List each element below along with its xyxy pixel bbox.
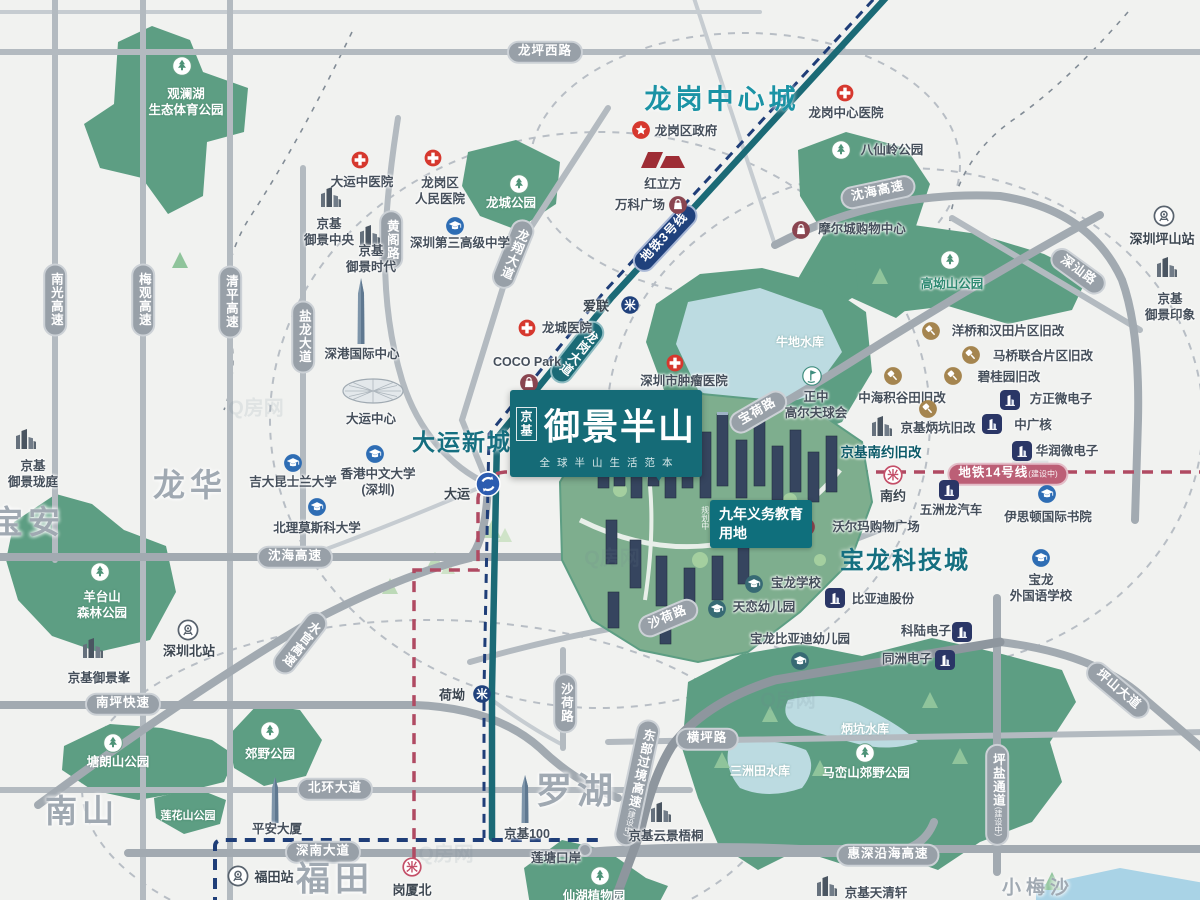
towers-icon (13, 427, 37, 449)
poi-label: 北理莫斯科大学 (273, 520, 361, 536)
road-label-pill: 坪山大道 (1082, 657, 1155, 723)
road-label-pill: 惠深沿海高速 (836, 844, 939, 867)
poi-label: 京基御景珑庭 (8, 458, 58, 491)
poi-label: 大运中心 (346, 411, 396, 427)
district-label: 宝安 (0, 497, 65, 543)
poi-label: 炳坑水库 (841, 722, 889, 738)
tree-icon (260, 721, 280, 741)
rail-station-icon (1154, 206, 1175, 227)
poi-label: 深圳市肿瘤医院 (640, 373, 728, 389)
school-icon (1038, 485, 1057, 504)
road-label-pill: 盐龙大道 (291, 301, 315, 374)
poi-label: 比亚迪股份 (852, 591, 915, 607)
logo-title: 御景半山 (544, 398, 696, 450)
metro-station-icon: 米 (402, 857, 422, 877)
navyb-icon (1012, 441, 1032, 461)
education-land-line1: 九年义务教育 (719, 505, 803, 524)
district-label: 福田 (296, 852, 374, 900)
poi-label: 马峦山郊野公园 (822, 765, 910, 781)
poi-label: 香港中文大学(深圳) (340, 466, 415, 499)
poi-label: 牛地水库 (776, 335, 824, 351)
area-title: 宝龙科技城 (840, 541, 970, 576)
road-label-pill: 沈海高速 (257, 546, 333, 569)
spire-icon (519, 775, 532, 823)
poi-label: 伊思顿国际书院 (1004, 509, 1092, 525)
school2-icon (791, 652, 810, 671)
district-label: 罗湖 (536, 762, 618, 814)
school-icon (1032, 549, 1051, 568)
rail-station-icon (178, 620, 199, 641)
poi-label: 深圳第三高级中学 (410, 235, 510, 251)
gavel-icon (962, 346, 981, 365)
poi-label: 塘朗山公园 (87, 754, 150, 770)
poi-label: 京基云景梧桐 (628, 828, 703, 844)
road-label-pill: 南光高速 (43, 264, 67, 337)
road-label-pill: 沙荷路 (635, 595, 701, 640)
road-label-pill: 横坪路 (676, 728, 739, 751)
school-icon (446, 217, 465, 236)
road-label-pill: 龙坪西路 (507, 41, 583, 64)
poi-label: 方正微电子 (1030, 391, 1093, 407)
hosp-icon (518, 319, 536, 337)
gavel-icon (944, 367, 963, 386)
gavel-icon (922, 322, 941, 341)
school-icon (308, 498, 327, 517)
poi-label: 观澜湖生态体育公园 (148, 86, 223, 119)
rail-station-icon (228, 866, 249, 887)
poi-label: 华润微电子 (1036, 443, 1099, 459)
area-title: 龙岗中心城 (645, 78, 800, 117)
poi-label: 平安大厦 (252, 821, 302, 837)
map-canvas[interactable]: 京基 御景半山 全球半山生活范本 规划中 九年义务教育 用地 Q房网Q房网Q房网… (0, 0, 1200, 900)
tree-icon (831, 140, 851, 160)
area-title: 大运新城 (412, 423, 512, 457)
station-label: 大运 (444, 484, 470, 503)
hosp-icon (424, 149, 442, 167)
station-label: 深圳北站 (163, 641, 215, 660)
towers-icon (648, 800, 672, 822)
poi-label: 碧桂园旧改 (978, 369, 1041, 385)
hosp-icon (351, 151, 369, 169)
poi-label: 羊台山森林公园 (77, 589, 127, 622)
gov-icon (632, 121, 651, 140)
gavel-icon (919, 400, 938, 419)
road-label-pill: 北环大道 (297, 778, 373, 801)
watermark: Q房网 (418, 838, 474, 867)
station-label: 南约 (880, 486, 906, 505)
logo-brand: 京基 (516, 407, 537, 441)
poi-label: 郊野公园 (245, 746, 295, 762)
logo-subtitle: 全球半山生活范本 (520, 455, 692, 470)
golf-icon (802, 366, 822, 386)
poi-label: 京基100 (504, 826, 550, 842)
station-label: 荷坳 (439, 685, 465, 704)
poi-label: 莲塘口岸 (531, 850, 581, 866)
navyb-icon (825, 588, 845, 608)
poi-label: 京基炳坑旧改 (900, 420, 975, 436)
education-land-tag: 规划中 (699, 506, 710, 530)
poi-label: 沃尔玛购物广场 (832, 519, 920, 535)
poi-label: 京基御景印象 (1145, 291, 1195, 324)
stadium-icon (341, 377, 405, 405)
station-label: 福田站 (254, 867, 293, 886)
poi-label: 龙岗区政府 (655, 123, 718, 139)
poi-label: 龙岗中心医院 (808, 105, 883, 121)
towers-icon (1154, 255, 1178, 277)
hosp-icon (836, 84, 854, 102)
project-logo: 京基 御景半山 全球半山生活范本 (510, 390, 702, 477)
station-label: 深圳坪山站 (1129, 229, 1194, 248)
poi-label: 摩尔城购物中心 (818, 221, 906, 237)
metro-line-label-pill: 地铁14号线(建设中) (947, 463, 1068, 486)
svg-text:米: 米 (475, 687, 488, 701)
tree-icon (590, 866, 610, 886)
towers-icon (80, 636, 104, 658)
road-label-pill: 沈海高速 (838, 173, 917, 211)
road-label-pill: 宝荷路 (725, 387, 790, 438)
poi-label: 宝龙外国语学校 (1010, 572, 1073, 605)
poi-label: 天恋幼儿园 (733, 599, 796, 615)
poi-label: 马桥联合片区旧改 (993, 348, 1093, 364)
poi-label: 龙城公园 (486, 195, 536, 211)
towers-icon (318, 185, 342, 207)
education-land-badge: 规划中 九年义务教育 用地 (710, 500, 812, 548)
svg-text:米: 米 (623, 298, 636, 312)
poi-label: 洋桥和汉田片区旧改 (952, 323, 1065, 339)
tree-icon (855, 743, 875, 763)
mall-icon (669, 196, 688, 215)
road-label-pill: 清平高速 (218, 266, 242, 339)
road-label-pill: 深汕路 (1046, 243, 1110, 298)
towers-icon (357, 223, 381, 245)
school-icon (284, 454, 303, 473)
district-label: 龙华 (153, 460, 227, 506)
road-label-pill: 坪盐通道(建设中) (985, 744, 1009, 846)
poi-label: 科陆电子 (901, 623, 951, 639)
navyb-icon (952, 622, 972, 642)
metro-station-icon: 米 (473, 685, 492, 704)
watermark: Q房网 (760, 684, 816, 713)
navyb-icon (935, 650, 955, 670)
watermark: Q房网 (584, 542, 640, 571)
school-icon (366, 445, 385, 464)
metro-station-icon: 米 (883, 465, 903, 485)
svg-text:米: 米 (405, 860, 418, 874)
gavel-icon (884, 367, 903, 386)
poi-label: 高坳山公园 (921, 276, 984, 292)
spire-icon (269, 777, 282, 823)
mall-icon (792, 221, 811, 240)
poi-label: 京基御景峯 (68, 670, 131, 686)
poi-label: 正中高尔夫球会 (785, 389, 848, 422)
hosp-icon (666, 354, 684, 372)
poi-label: 八仙岭公园 (861, 142, 924, 158)
tree-icon (172, 56, 192, 76)
district-label: 小梅沙 (1002, 873, 1074, 900)
tree-icon (90, 562, 110, 582)
road-label-pill: 南坪快速 (85, 693, 161, 716)
metro-station-icon (475, 471, 501, 497)
poi-label: 龙岗区人民医院 (415, 175, 465, 208)
poi-label: 五洲龙汽车 (920, 502, 983, 518)
poi-label: 莲花山公园 (161, 809, 216, 823)
poi-label: COCO Park (493, 354, 561, 370)
redcube-icon (640, 151, 686, 169)
tree-icon (103, 733, 123, 753)
station-label: 爱联 (583, 296, 609, 315)
navyb-icon (982, 414, 1002, 434)
metro-station-icon: 米 (621, 296, 640, 315)
poi-label: 宝龙学校 (771, 575, 821, 591)
spire-icon (355, 278, 368, 344)
road-label-pill: 沙荷路 (553, 673, 577, 733)
poi-label: 深港国际中心 (324, 346, 399, 362)
poi-label: 京基御景时代 (346, 243, 396, 276)
poi-label: 同洲电子 (882, 651, 932, 667)
district-label: 南山 (45, 786, 119, 832)
poi-label: 龙城医院 (542, 320, 592, 336)
navyb-icon (939, 480, 959, 500)
navyb-icon (1000, 390, 1020, 410)
poi-label: 仙湖植物园 (563, 888, 626, 900)
station-label: 岗厦北 (392, 880, 431, 899)
school2-icon (745, 575, 764, 594)
poi-label: 中广核 (1014, 417, 1052, 433)
poi-label: 三洲田水库 (730, 764, 790, 780)
towers-icon (814, 874, 838, 896)
poi-label: 万科广场 (615, 197, 665, 213)
road-label-pill: 梅观高速 (131, 264, 155, 337)
poi-label: 红立方 (644, 176, 682, 192)
poi-label: 宝龙比亚迪幼儿园 (750, 631, 850, 647)
poi-label: 京基天清轩 (845, 885, 908, 900)
svg-text:米: 米 (886, 468, 899, 482)
road-label-pill: 龙翔大道 (488, 216, 537, 293)
education-land-line2: 用地 (719, 524, 803, 543)
poi-label: 吉大昆士兰大学 (249, 474, 337, 490)
tree-icon (940, 250, 960, 270)
school2-icon (708, 600, 727, 619)
poi-label: 京基南约旧改 (841, 444, 922, 462)
tree-icon (509, 174, 529, 194)
towers-icon (869, 414, 893, 436)
road-label-pill: 水官高速 (268, 607, 332, 679)
watermark: Q房网 (228, 392, 284, 421)
